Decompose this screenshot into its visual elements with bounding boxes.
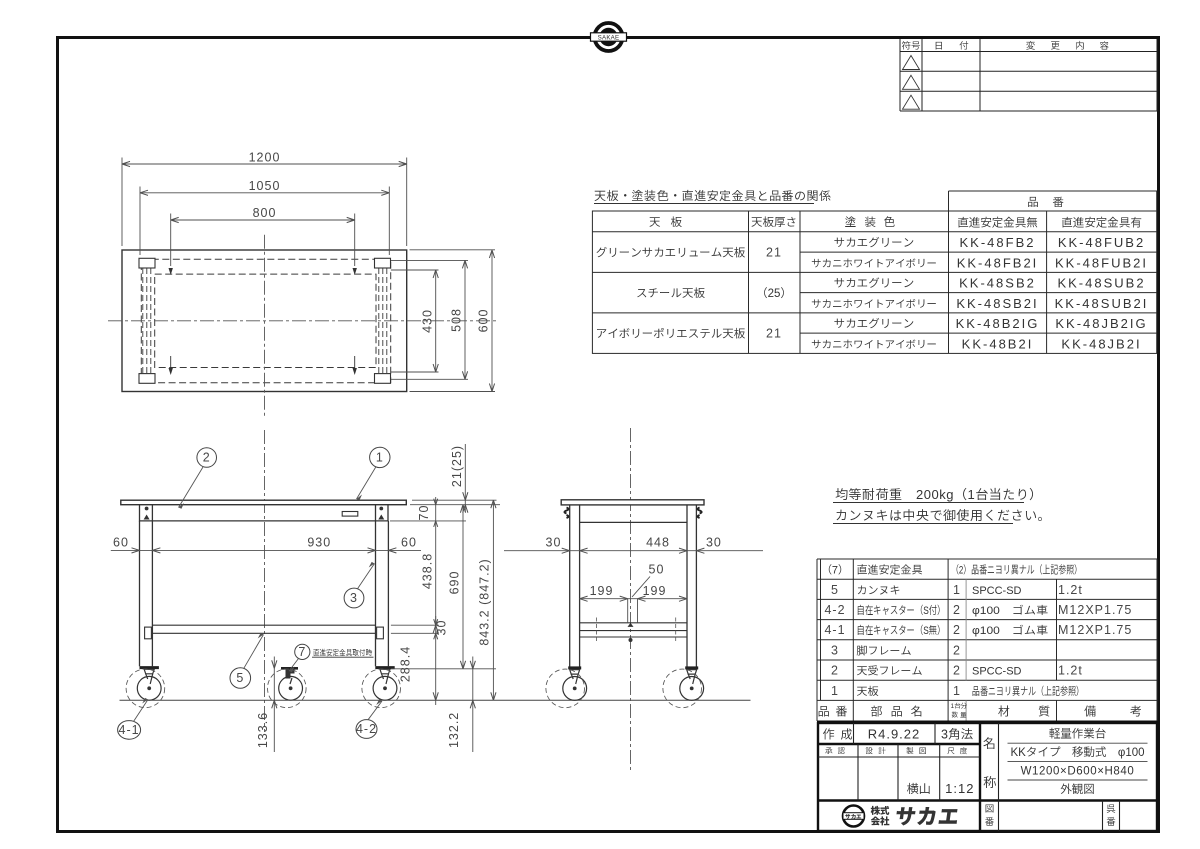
svg-text:132.2: 132.2 <box>447 712 461 748</box>
svg-text:サカエ: サカエ <box>893 801 962 831</box>
svg-text:天受フレーム: 天受フレーム <box>857 663 923 679</box>
svg-text:（7）: （7） <box>821 562 849 578</box>
svg-text:外観図: 外観図 <box>1060 781 1095 797</box>
svg-text:2: 2 <box>953 664 961 678</box>
svg-text:2: 2 <box>953 603 961 617</box>
svg-text:KK-48FUB2I: KK-48FUB2I <box>1055 252 1148 271</box>
svg-text:3: 3 <box>350 591 358 605</box>
svg-text:800: 800 <box>253 206 277 220</box>
svg-text:21(25): 21(25) <box>450 445 464 487</box>
svg-text:21: 21 <box>766 246 782 260</box>
svg-text:（25）: （25） <box>756 285 792 301</box>
svg-text:30: 30 <box>435 620 449 636</box>
svg-text:アイボリーポリエステル天板: アイボリーポリエステル天板 <box>596 326 746 342</box>
svg-text:番: 番 <box>1106 814 1116 828</box>
svg-text:名: 名 <box>983 733 996 752</box>
svg-text:軽量作業台: 軽量作業台 <box>1049 726 1107 742</box>
svg-text:自在キャスター（S無）: 自在キャスター（S無） <box>857 622 946 638</box>
svg-text:1.2t: 1.2t <box>1058 583 1083 597</box>
svg-text:天板・塗装色・直進安定金具と品番の関係: 天板・塗装色・直進安定金具と品番の関係 <box>594 187 832 204</box>
svg-text:グリーンサカエリューム天板: グリーンサカエリューム天板 <box>596 245 746 261</box>
svg-text:KK-48JB2IG: KK-48JB2IG <box>1055 313 1147 332</box>
svg-text:品番: 品番 <box>817 703 853 720</box>
svg-text:スチール天板: スチール天板 <box>636 285 705 301</box>
svg-text:1: 1 <box>831 684 839 698</box>
svg-text:KK-48B2IG: KK-48B2IG <box>956 313 1040 332</box>
svg-text:KK-48SB2: KK-48SB2 <box>959 273 1036 292</box>
svg-text:備考: 備考 <box>1084 703 1176 720</box>
svg-text:21: 21 <box>766 327 782 341</box>
svg-text:KK-48FUB2: KK-48FUB2 <box>1058 232 1145 251</box>
svg-text:KK-48B2I: KK-48B2I <box>962 333 1034 352</box>
svg-text:1200: 1200 <box>249 151 281 165</box>
svg-text:1: 1 <box>953 583 961 597</box>
svg-text:448: 448 <box>646 536 670 550</box>
svg-text:尺度: 尺度 <box>947 746 972 757</box>
svg-text:品番: 品番 <box>1027 194 1078 210</box>
svg-text:会社: 会社 <box>871 814 891 828</box>
svg-text:508: 508 <box>450 308 464 332</box>
svg-text:SPCC-SD: SPCC-SD <box>972 663 1022 679</box>
svg-text:4-2: 4-2 <box>824 603 845 617</box>
svg-text:脚フレーム: 脚フレーム <box>857 642 912 658</box>
svg-text:288.4: 288.4 <box>399 646 413 682</box>
svg-text:KK-48JB2I: KK-48JB2I <box>1061 333 1141 352</box>
svg-text:天板厚さ: 天板厚さ <box>751 214 797 230</box>
svg-text:4-1: 4-1 <box>119 723 140 737</box>
svg-text:30: 30 <box>546 536 562 550</box>
svg-text:φ100 ゴム車: φ100 ゴム車 <box>972 602 1048 618</box>
svg-text:サカエグリーン: サカエグリーン <box>834 235 915 251</box>
svg-text:符号: 符号 <box>902 38 921 52</box>
svg-text:50: 50 <box>649 563 665 577</box>
svg-text:1: 1 <box>376 451 384 465</box>
svg-text:塗装色: 塗装色 <box>845 214 904 230</box>
svg-text:M12XP1.75: M12XP1.75 <box>1058 623 1132 637</box>
svg-text:日付: 日付 <box>934 38 984 52</box>
svg-text:自在キャスター（S付）: 自在キャスター（S付） <box>857 602 946 618</box>
svg-text:R4.9.22: R4.9.22 <box>868 727 921 742</box>
svg-text:2: 2 <box>831 664 839 678</box>
svg-text:設計: 設計 <box>866 746 891 757</box>
svg-text:2: 2 <box>953 623 961 637</box>
svg-text:製図: 製図 <box>906 746 931 757</box>
svg-text:カンヌキは中央で御使用ください。: カンヌキは中央で御使用ください。 <box>835 505 1051 524</box>
svg-text:70: 70 <box>417 505 431 521</box>
svg-text:天板: 天板 <box>649 214 692 230</box>
svg-text:2: 2 <box>953 643 961 657</box>
svg-text:KK-48SB2I: KK-48SB2I <box>956 293 1038 312</box>
svg-text:4-2: 4-2 <box>356 722 377 736</box>
svg-text:M12XP1.75: M12XP1.75 <box>1058 603 1132 617</box>
svg-text:438.8: 438.8 <box>421 553 435 589</box>
svg-text:サカエグリーン: サカエグリーン <box>834 275 915 291</box>
svg-text:（2）品番ニヨリ異ナル（上記参照）: （2）品番ニヨリ異ナル（上記参照） <box>951 562 1082 578</box>
svg-text:600: 600 <box>477 309 491 333</box>
svg-text:430: 430 <box>421 309 435 333</box>
svg-text:直進安定金具取付時: 直進安定金具取付時 <box>313 647 372 658</box>
svg-text:4-1: 4-1 <box>824 623 845 637</box>
svg-text:直進安定金具無: 直進安定金具無 <box>957 215 1038 231</box>
svg-text:称: 称 <box>983 772 996 791</box>
svg-text:KK-48FB2: KK-48FB2 <box>960 232 1036 251</box>
svg-text:カンヌキ: カンヌキ <box>857 582 901 598</box>
svg-text:サカニホワイトアイボリー: サカニホワイトアイボリー <box>811 296 937 311</box>
svg-text:1: 1 <box>953 684 961 698</box>
svg-text:SPCC-SD: SPCC-SD <box>972 582 1022 598</box>
svg-text:変更内容: 変更内容 <box>1026 38 1124 52</box>
svg-text:KK-48SUB2I: KK-48SUB2I <box>1055 293 1149 312</box>
svg-text:199: 199 <box>643 584 667 598</box>
svg-text:図: 図 <box>985 801 995 815</box>
svg-text:690: 690 <box>448 571 462 595</box>
svg-text:2: 2 <box>203 451 211 465</box>
svg-text:横山: 横山 <box>907 780 931 797</box>
svg-text:直進安定金具有: 直進安定金具有 <box>1061 215 1142 231</box>
svg-text:KK-48FB2I: KK-48FB2I <box>957 252 1039 271</box>
svg-text:均等耐荷重 200kg（1台当たり）: 均等耐荷重 200kg（1台当たり） <box>835 484 1043 503</box>
svg-text:部品名: 部品名 <box>870 703 930 720</box>
svg-text:呉: 呉 <box>1106 801 1116 815</box>
svg-text:1:12: 1:12 <box>945 781 974 796</box>
svg-text:材質: 材質 <box>998 703 1078 720</box>
svg-text:199: 199 <box>590 584 614 598</box>
svg-text:7: 7 <box>298 645 306 659</box>
svg-text:60: 60 <box>401 536 417 550</box>
svg-text:930: 930 <box>307 536 331 550</box>
svg-text:30: 30 <box>706 536 722 550</box>
svg-text:サカエ: サカエ <box>845 812 862 820</box>
svg-text:5: 5 <box>236 671 244 685</box>
svg-text:KKタイプ 移動式 φ100: KKタイプ 移動式 φ100 <box>1011 744 1145 760</box>
svg-text:SAKAE: SAKAE <box>598 35 620 42</box>
svg-text:サカエグリーン: サカエグリーン <box>834 316 915 332</box>
svg-text:843.2 (847.2): 843.2 (847.2) <box>478 558 492 645</box>
svg-text:数量: 数量 <box>951 709 969 719</box>
svg-text:KK-48SUB2: KK-48SUB2 <box>1057 273 1145 292</box>
svg-text:3: 3 <box>831 643 839 657</box>
svg-text:サカニホワイトアイボリー: サカニホワイトアイボリー <box>811 256 937 271</box>
svg-text:φ100 ゴム車: φ100 ゴム車 <box>972 622 1048 638</box>
svg-text:天板: 天板 <box>857 683 879 699</box>
svg-text:133.6: 133.6 <box>256 712 270 748</box>
svg-text:作成: 作成 <box>823 726 859 743</box>
svg-text:1050: 1050 <box>249 179 281 193</box>
svg-text:直進安定金具: 直進安定金具 <box>857 562 923 578</box>
svg-text:60: 60 <box>113 536 129 550</box>
svg-text:1.2t: 1.2t <box>1058 664 1083 678</box>
svg-text:サカニホワイトアイボリー: サカニホワイトアイボリー <box>811 337 937 352</box>
svg-text:品番ニヨリ異ナル（上記参照）: 品番ニヨリ異ナル（上記参照） <box>972 683 1084 699</box>
svg-text:番: 番 <box>985 814 995 828</box>
svg-text:W1200×D600×H840: W1200×D600×H840 <box>1021 766 1135 778</box>
svg-text:承認: 承認 <box>825 746 850 757</box>
svg-text:5: 5 <box>831 583 839 597</box>
